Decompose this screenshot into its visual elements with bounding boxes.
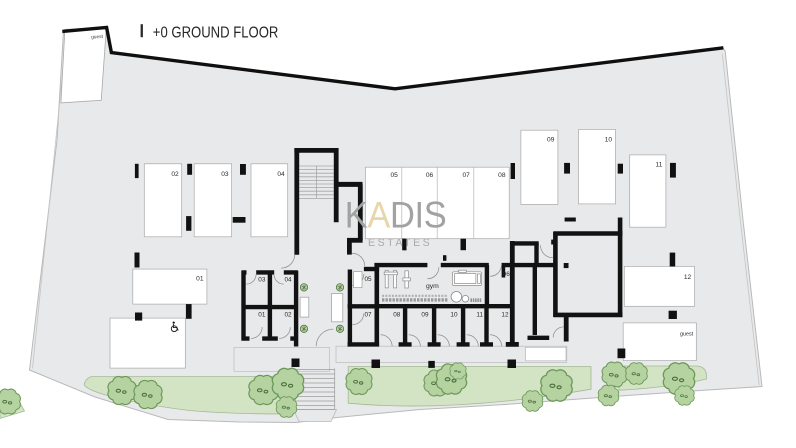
svg-text:KADIS: KADIS [345,195,447,236]
svg-text:11: 11 [476,312,483,319]
svg-text:+0 GROUND FLOOR: +0 GROUND FLOOR [153,24,279,41]
svg-text:03: 03 [221,171,229,178]
svg-text:03: 03 [258,276,266,283]
svg-text:12: 12 [684,274,692,281]
svg-text:09: 09 [421,312,429,319]
svg-text:guest: guest [91,34,104,41]
svg-text:05: 05 [390,172,398,179]
svg-text:07: 07 [462,172,470,179]
svg-text:01: 01 [196,276,204,283]
svg-text:ESTATES: ESTATES [368,237,432,249]
svg-text:08: 08 [498,172,506,179]
svg-text:02: 02 [171,171,179,178]
svg-text:10: 10 [450,312,458,319]
svg-text:04: 04 [284,276,292,283]
svg-text:12: 12 [501,312,509,319]
svg-text:11: 11 [656,161,663,168]
svg-text:08: 08 [393,312,401,319]
svg-text:01: 01 [258,312,266,319]
svg-text:05: 05 [364,276,372,283]
svg-text:06: 06 [426,172,434,179]
svg-text:10: 10 [605,137,613,144]
svg-text:gym: gym [426,283,439,290]
svg-text:06: 06 [503,271,511,278]
svg-text:09: 09 [547,137,555,144]
svg-text:07: 07 [364,312,372,319]
svg-text:02: 02 [284,312,292,319]
svg-text:04: 04 [277,171,285,178]
svg-text:guest: guest [680,332,694,338]
